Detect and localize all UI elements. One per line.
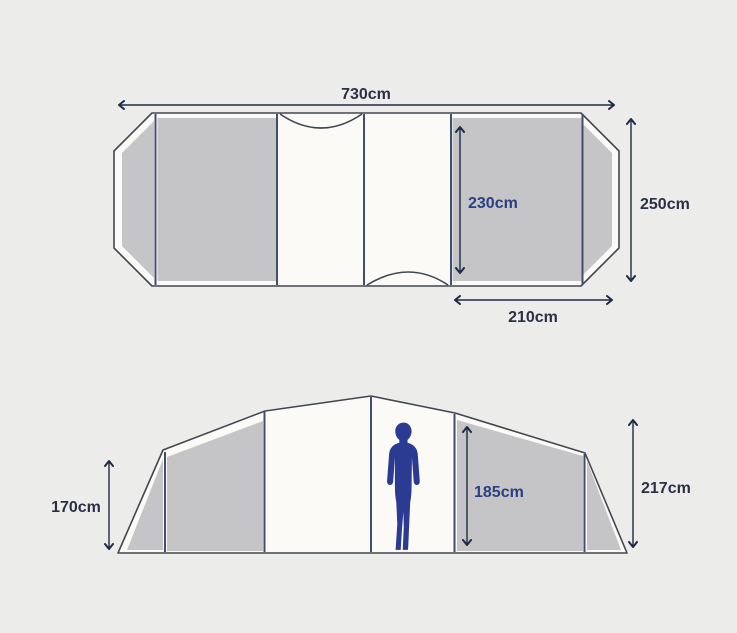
dim-label-bedroom-width: 210cm (508, 309, 558, 326)
dim-label-overall-width: 730cm (341, 86, 391, 103)
dim-label-overall-depth: 250cm (640, 196, 690, 213)
side-elevation: 170cm 185cm 217cm (51, 396, 691, 553)
tent-dimension-diagram: 730cm 250cm 230cm 210cm (0, 0, 737, 633)
floor-plan: 730cm 250cm 230cm 210cm (114, 86, 690, 326)
dim-label-interior-height: 185cm (474, 484, 524, 501)
dim-label-bedroom-depth: 230cm (468, 195, 518, 212)
dim-label-peak-height: 217cm (641, 480, 691, 497)
bedroom-panel-left (158, 118, 277, 281)
elevation-panel-left (167, 421, 263, 551)
diagram-canvas: 730cm 250cm 230cm 210cm (0, 0, 737, 633)
dim-label-side-height: 170cm (51, 499, 101, 516)
